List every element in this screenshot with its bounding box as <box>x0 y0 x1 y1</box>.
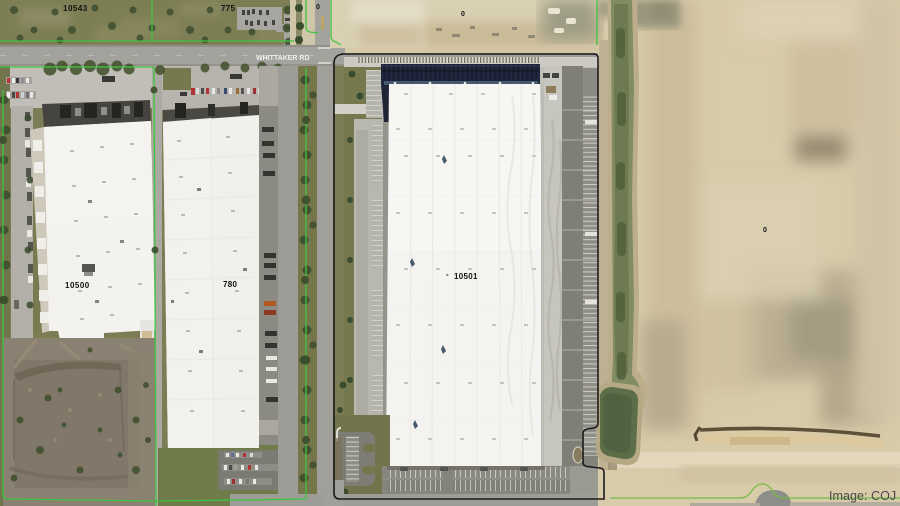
svg-text:-: - <box>446 270 449 279</box>
svg-text:WHITTAKER RD: WHITTAKER RD <box>256 55 310 62</box>
svg-text:780: 780 <box>223 280 237 289</box>
svg-text:0: 0 <box>316 4 320 11</box>
svg-text:0: 0 <box>461 11 465 18</box>
svg-text:775: 775 <box>221 4 235 13</box>
svg-text:10543: 10543 <box>63 4 88 13</box>
svg-text:10501: 10501 <box>454 272 478 281</box>
svg-text:10500: 10500 <box>65 281 90 290</box>
svg-text:0: 0 <box>763 227 767 234</box>
svg-text:Image: COJ: Image: COJ <box>829 489 896 503</box>
